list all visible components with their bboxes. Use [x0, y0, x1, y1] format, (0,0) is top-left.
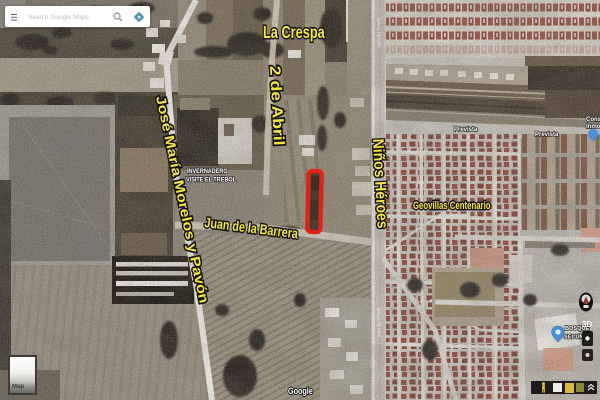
- svg-text:Conso: Conso: [586, 117, 600, 123]
- svg-text:Prevista: Prevista: [535, 132, 559, 138]
- svg-text:3D: 3D: [582, 320, 592, 329]
- svg-text:INVERNADERO: INVERNADERO: [187, 169, 228, 175]
- svg-text:Prevista: Prevista: [454, 127, 478, 133]
- svg-text:Geovillas Centenario: Geovillas Centenario: [413, 200, 491, 213]
- svg-text:VISITE EL TREBOL: VISITE EL TREBOL: [186, 177, 237, 183]
- svg-text:Niños Heroes: Niños Heroes: [375, 18, 382, 48]
- svg-text:Google: Google: [288, 385, 313, 396]
- svg-text:La Crespa: La Crespa: [263, 23, 325, 43]
- svg-text:Niños Heroes: Niños Heroes: [375, 308, 382, 338]
